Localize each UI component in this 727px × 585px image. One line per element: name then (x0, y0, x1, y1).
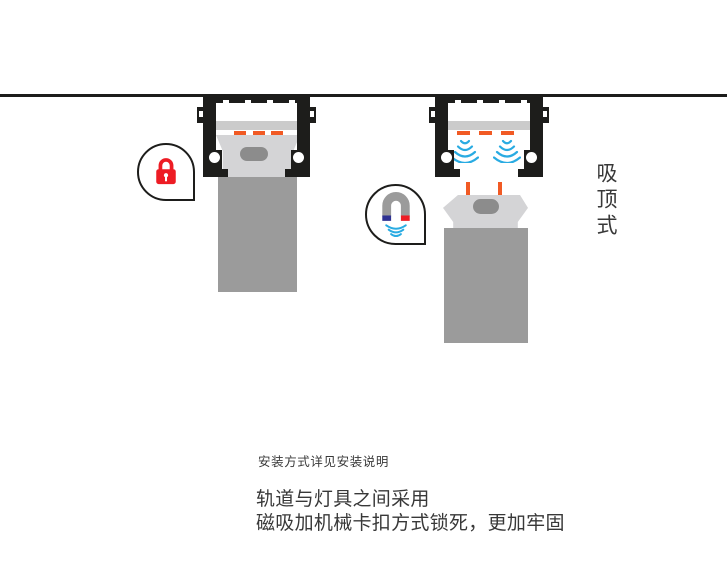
track-foot-lip (285, 169, 291, 177)
fixture-installed (203, 95, 310, 292)
install-note: 安装方式详见安装说明 (258, 451, 389, 470)
ceiling-line (0, 94, 727, 97)
power-pin-right (498, 182, 502, 195)
track-hook-notch (310, 111, 314, 117)
lamp-knob (473, 199, 499, 214)
illustration-canvas: 吸顶式 安装方式详见安装说明 轨道与灯具之间采用 磁吸加机械卡扣方式锁死，更加牢… (0, 0, 727, 585)
magnet-callout (365, 184, 426, 245)
power-pin-left (466, 182, 470, 195)
magnetic-strip (448, 121, 530, 130)
magnetic-field-waves (493, 139, 521, 163)
rail-notch (499, 100, 505, 103)
fixture-detached (435, 95, 543, 343)
lamp-body (444, 228, 528, 343)
rail-notch (289, 100, 295, 103)
contact-dash (234, 131, 246, 135)
track-profile (435, 95, 543, 177)
rail-notch (477, 100, 483, 103)
track-foot-lip (518, 169, 524, 177)
lock-icon (153, 156, 179, 188)
track-screw-hole-right (293, 152, 304, 163)
lock-callout (137, 143, 195, 201)
rail-notch (223, 100, 229, 103)
track-profile (203, 95, 310, 177)
contact-dash (253, 131, 265, 135)
rail-notch (267, 100, 273, 103)
track-foot-lip (222, 169, 228, 177)
track-foot-lip (454, 169, 460, 177)
track-hook-notch (543, 111, 547, 117)
magnetic-field-waves (386, 225, 406, 236)
contact-dash (457, 131, 470, 135)
track-hook-notch (199, 111, 203, 117)
contact-dash (501, 131, 514, 135)
magnet-icon (378, 191, 414, 238)
track-screw-hole-left (441, 152, 452, 163)
rail-notch (455, 100, 461, 103)
description-line-2: 磁吸加机械卡扣方式锁死，更加牢固 (256, 512, 565, 536)
track-hook-notch (431, 111, 435, 117)
rail-notch (521, 100, 527, 103)
description-text: 轨道与灯具之间采用 磁吸加机械卡扣方式锁死，更加牢固 (256, 488, 565, 536)
track-screw-hole-right (526, 152, 537, 163)
contact-dash (271, 131, 283, 135)
magnetic-strip (216, 121, 297, 130)
rail-notch (245, 100, 251, 103)
mount-type-label: 吸顶式 (590, 162, 620, 240)
contact-dash (479, 131, 492, 135)
track-screw-hole-left (209, 152, 220, 163)
magnetic-field-waves (451, 139, 479, 163)
description-line-1: 轨道与灯具之间采用 (256, 488, 565, 512)
lamp-body (218, 177, 297, 292)
